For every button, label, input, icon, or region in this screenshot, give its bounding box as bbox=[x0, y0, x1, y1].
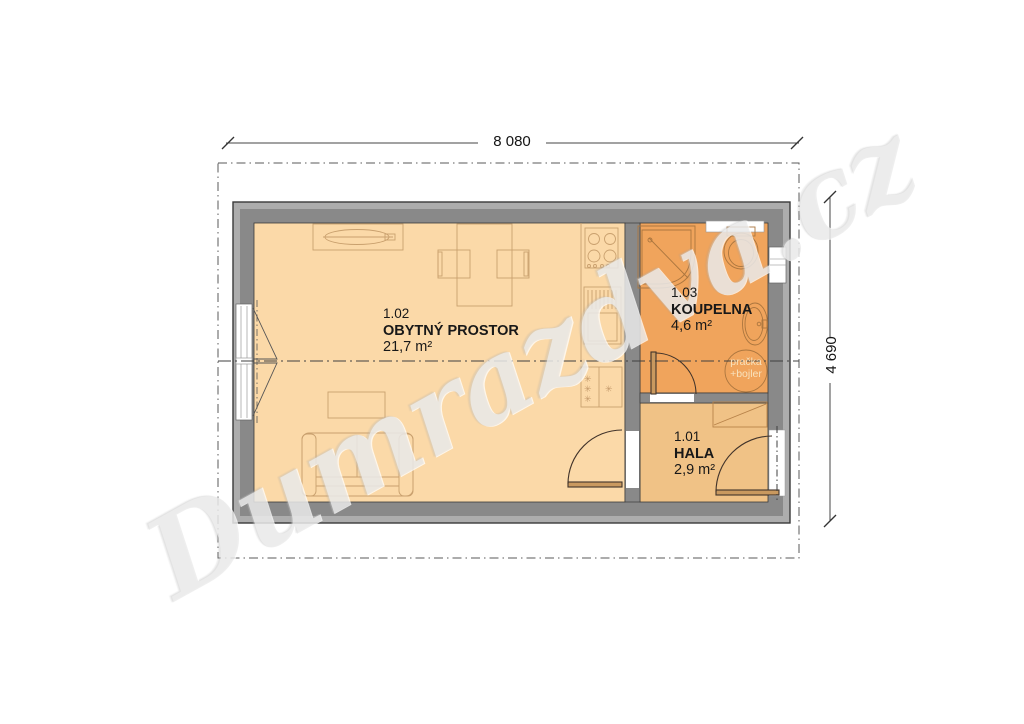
freezer-star: ✳ bbox=[584, 374, 592, 384]
room-number: 1.01 bbox=[674, 429, 715, 446]
room-area: 2,9 m² bbox=[674, 462, 715, 479]
living-hall-door-opening bbox=[626, 431, 639, 488]
room-name: HALA bbox=[674, 446, 715, 463]
freezer-star: ✳ bbox=[584, 394, 592, 404]
floor-plan-canvas: ✳ ✳ ✳ ✳ bbox=[0, 0, 1024, 724]
dimension-width-label: 8 080 bbox=[477, 133, 547, 150]
room-area: 21,7 m² bbox=[383, 339, 519, 356]
washer-boiler-label: pračka +bojler bbox=[718, 356, 774, 380]
floor-plan-drawing: ✳ ✳ ✳ ✳ bbox=[0, 0, 1024, 724]
freezer-star: ✳ bbox=[605, 384, 613, 394]
room-number: 1.02 bbox=[383, 306, 519, 323]
living-room-floor bbox=[254, 223, 625, 502]
room-name: OBYTNÝ PROSTOR bbox=[383, 323, 519, 340]
room-label-bathroom: 1.03 KOUPELNA 4,6 m² bbox=[671, 285, 752, 335]
dimension-height-label: 4 690 bbox=[823, 323, 841, 387]
room-label-hall: 1.01 HALA 2,9 m² bbox=[674, 429, 715, 479]
right-window-icon bbox=[769, 247, 786, 283]
room-label-living: 1.02 OBYTNÝ PROSTOR 21,7 m² bbox=[383, 306, 519, 356]
bathroom-door-opening bbox=[650, 394, 694, 402]
freezer-star: ✳ bbox=[584, 384, 592, 394]
room-name: KOUPELNA bbox=[671, 302, 752, 319]
room-area: 4,6 m² bbox=[671, 318, 752, 335]
room-number: 1.03 bbox=[671, 285, 752, 302]
